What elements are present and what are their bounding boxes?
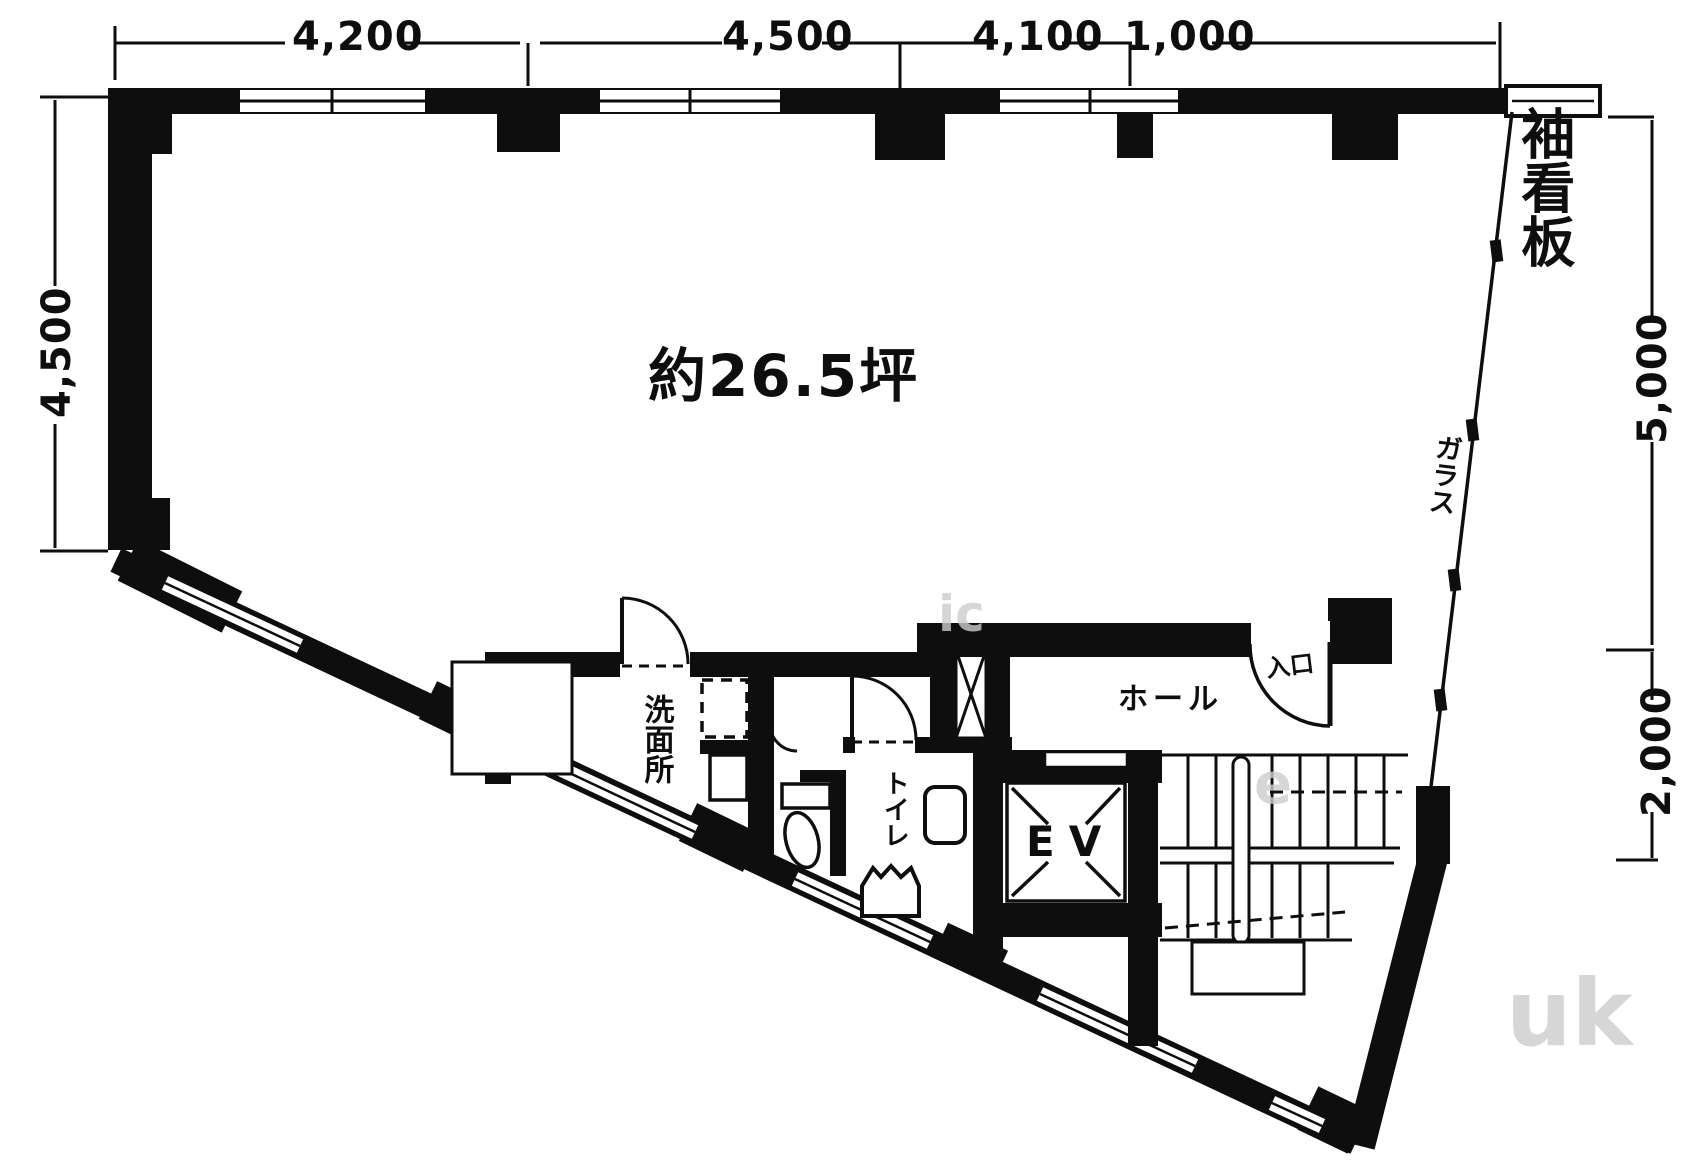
stair-landing <box>1192 942 1304 994</box>
toilet1-tank <box>782 784 830 808</box>
watermark-fragment: e <box>1254 756 1292 815</box>
west-wall <box>108 88 152 550</box>
cabinet-dashed <box>702 680 747 737</box>
pillar <box>1332 88 1398 160</box>
toilet1-wall <box>830 770 846 876</box>
pillar <box>688 822 752 853</box>
stair-break-line <box>1165 912 1345 928</box>
dimension-top-3: 4,100 <box>972 16 1104 58</box>
watermark-fragment: uk <box>1506 966 1633 1063</box>
dimension-lines <box>40 22 1658 860</box>
dimension-right-upper: 5,000 <box>1632 314 1674 444</box>
toilet1-wall <box>763 770 773 782</box>
stair-rail <box>1233 757 1249 943</box>
dimension-top-1: 4,200 <box>292 16 424 58</box>
counter-wall <box>700 740 750 754</box>
pillar <box>875 88 945 160</box>
facade-corner-block <box>1416 786 1450 864</box>
pillar <box>497 88 560 152</box>
floor-area-label: 約26.5坪 <box>648 346 919 407</box>
hall-label: ホール <box>1118 684 1223 716</box>
ev-west-wall <box>973 752 1003 966</box>
floor-plan-page: 4,200 4,500 4,100 1,000 4,500 5,000 2,00… <box>0 0 1687 1169</box>
floor-plan-drawing <box>0 0 1687 1169</box>
dimension-left: 4,500 <box>36 288 78 418</box>
pipe-shaft <box>956 650 986 738</box>
dimension-right-lower: 2,000 <box>1636 687 1678 817</box>
toilet-label: トイレ <box>880 770 907 848</box>
entrance-label: 入口 <box>1265 651 1316 682</box>
elevator-label: EV <box>1026 820 1115 864</box>
stair-treads-lower <box>1188 863 1328 938</box>
sleeve-signboard-label: 袖看板 <box>1514 106 1571 268</box>
washroom-label: 洗面所 <box>640 694 672 784</box>
x-brace-icon <box>956 650 986 738</box>
toilet2-bowl <box>862 866 919 916</box>
dimension-top-4: 1,000 <box>1124 16 1256 58</box>
toilet1-door <box>770 724 797 751</box>
washroom-sink <box>710 755 747 800</box>
dimension-top-2: 4,500 <box>722 16 854 58</box>
shaft-wall <box>986 645 1010 753</box>
watermark-fragment: ic <box>938 588 985 641</box>
corridor-door <box>852 676 916 742</box>
toilet2-basin <box>925 787 965 843</box>
southeast-wall <box>1360 858 1433 1146</box>
alcove <box>452 662 572 774</box>
ev-east-wall <box>1128 750 1158 1046</box>
exterior-walls <box>108 88 1510 550</box>
stair-divider <box>1160 848 1400 863</box>
pillar <box>1328 598 1392 664</box>
ev-south-wall <box>1000 903 1162 937</box>
ev-door-opening <box>1045 752 1127 767</box>
